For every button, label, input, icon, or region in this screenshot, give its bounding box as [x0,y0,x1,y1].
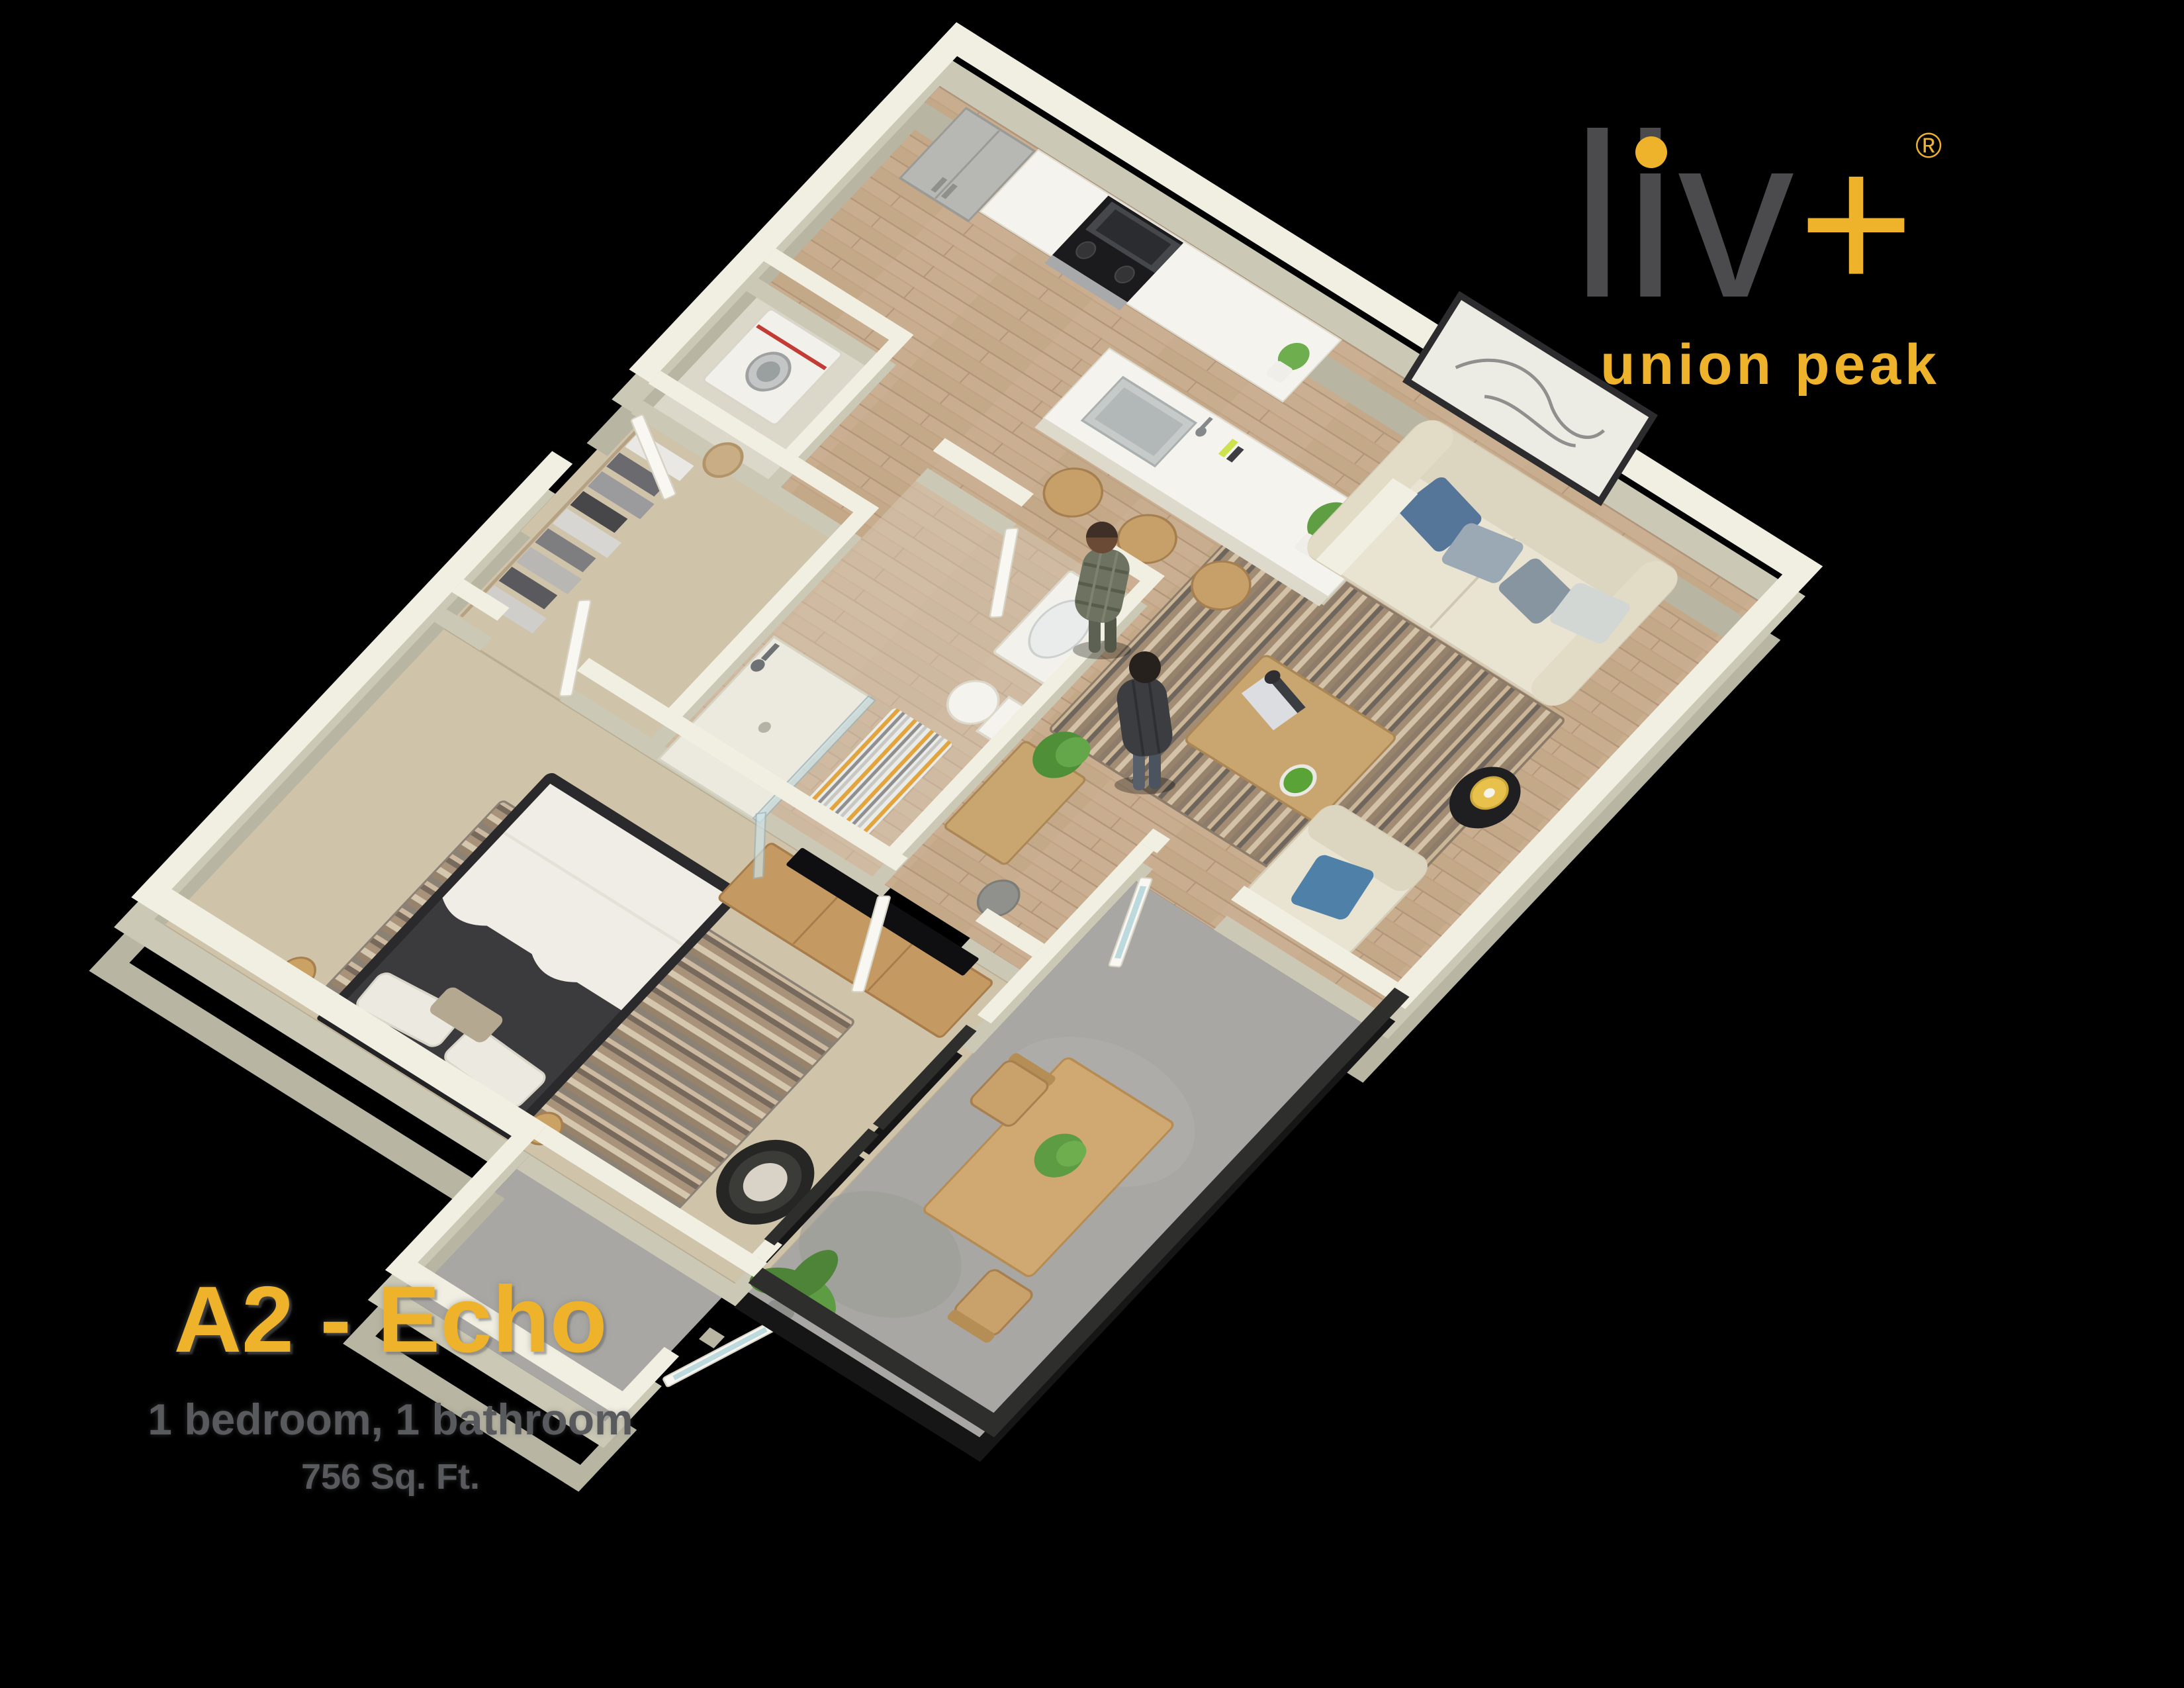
brand-plus-icon: + [1798,111,1914,334]
registered-mark: ® [1915,126,1942,165]
plan-info-block: A2 - Echo 1 bedroom, 1 bathroom 756 Sq. … [93,1266,688,1497]
plan-area: 756 Sq. Ft. [93,1456,688,1497]
plan-details: 1 bedroom, 1 bathroom [93,1394,688,1444]
brand-logo: liv+® union peak [1572,99,1940,393]
page: liv+® union peak A2 - Echo 1 bedroom, 1 … [0,0,2184,1688]
brand-wordmark: liv [1572,85,1796,346]
plan-name: A2 - Echo [93,1266,688,1374]
shower-glass-door [754,812,766,878]
brand-i-dot [1635,136,1667,168]
